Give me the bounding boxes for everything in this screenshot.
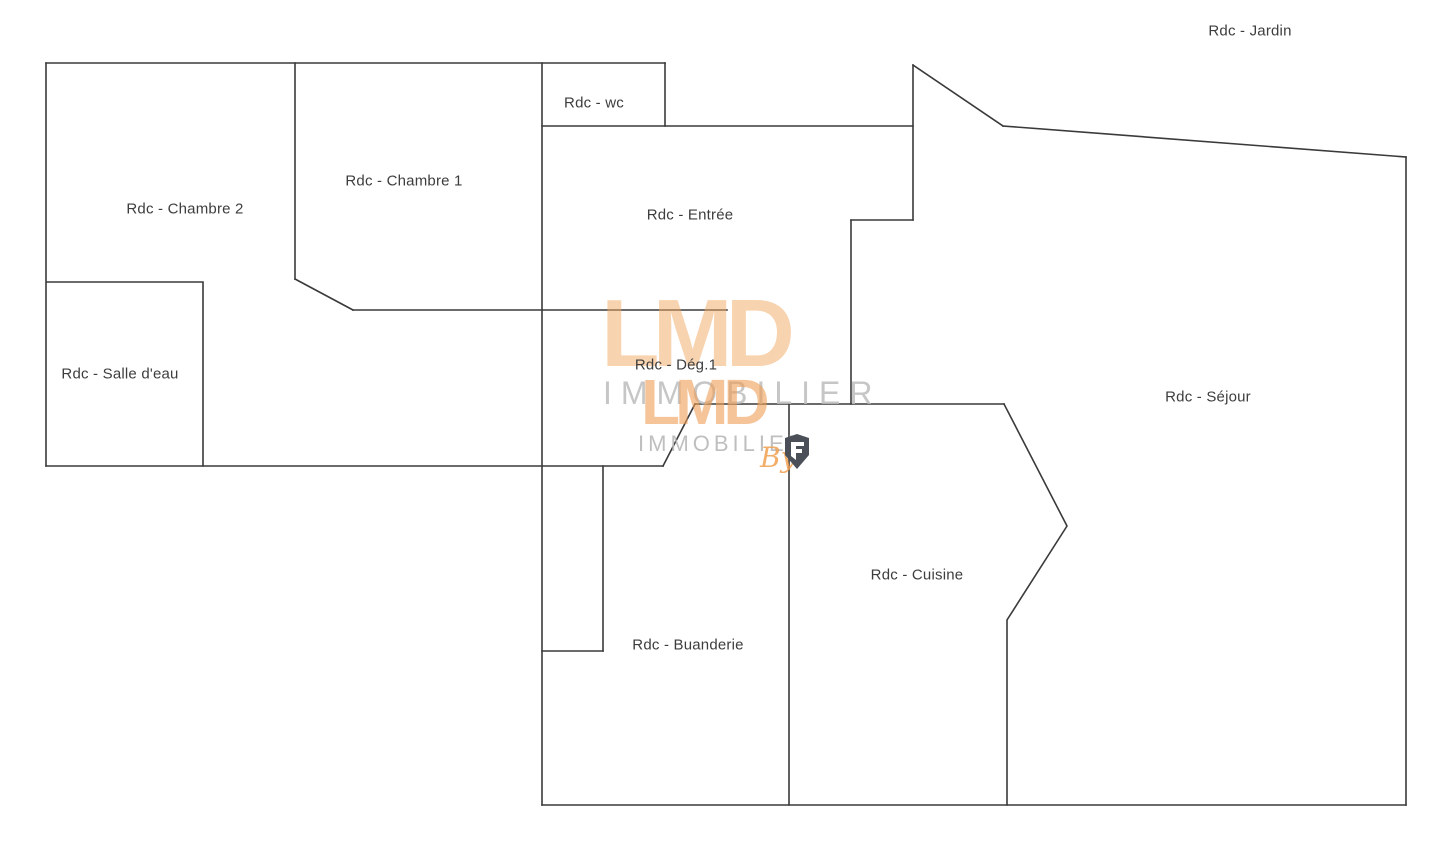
floorplan-canvas: LMD IMMOBILIER LMD IMMOBILIER By Rdc - J…	[0, 0, 1450, 864]
room-label-jardin: Rdc - Jardin	[1208, 23, 1291, 40]
room-label-sejour: Rdc - Séjour	[1165, 389, 1251, 406]
wall-deg-diagonal	[663, 404, 695, 466]
room-label-wc: Rdc - wc	[564, 95, 624, 112]
wall-jardin-slope	[1003, 126, 1406, 157]
room-label-entree: Rdc - Entrée	[647, 207, 734, 224]
room-label-deg-1: Rdc - Dég.1	[635, 357, 717, 374]
room-label-chambre-1: Rdc - Chambre 1	[345, 173, 462, 190]
floorplan-walls	[0, 0, 1450, 864]
room-label-chambre-2: Rdc - Chambre 2	[126, 201, 243, 218]
wall-cuisine-right	[1004, 404, 1067, 805]
wall-peak-diagonal	[913, 65, 1003, 126]
room-label-buanderie: Rdc - Buanderie	[632, 637, 743, 654]
wall-chambre1-diagonal	[295, 279, 353, 310]
room-label-salle-eau: Rdc - Salle d'eau	[61, 366, 178, 383]
room-label-cuisine: Rdc - Cuisine	[871, 567, 964, 584]
